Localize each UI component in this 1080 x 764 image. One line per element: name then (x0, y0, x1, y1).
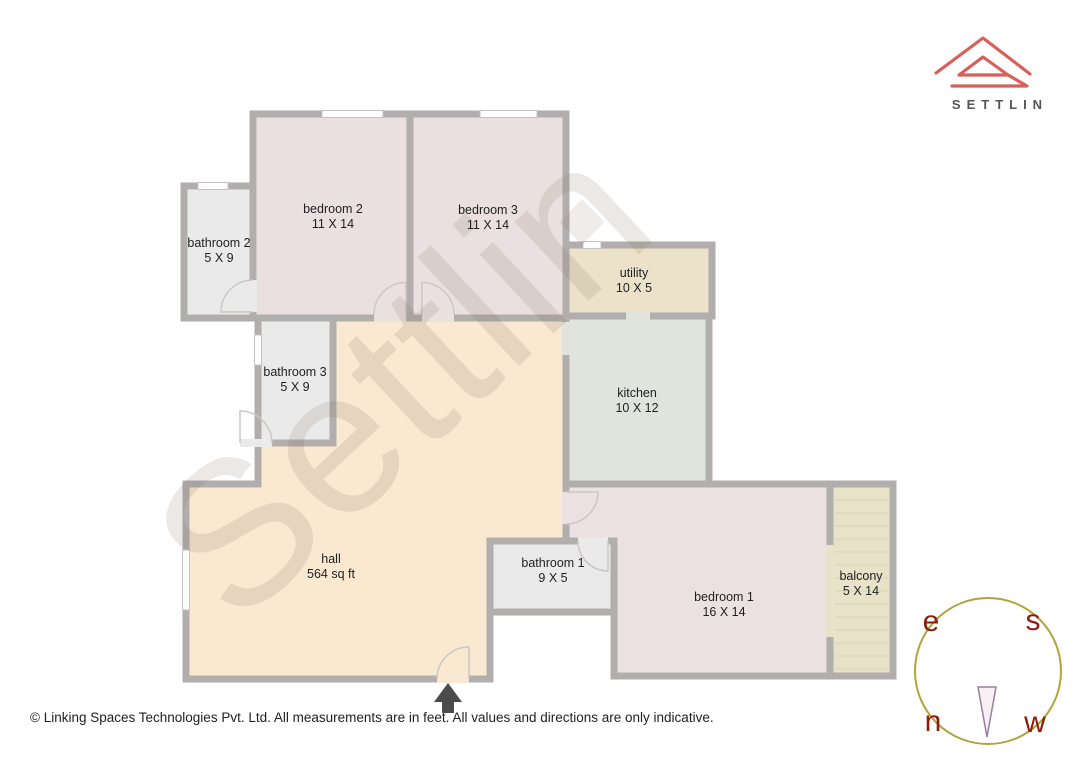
compass-south-label: s (1018, 606, 1048, 636)
window-bedroom-2 (322, 111, 383, 118)
room-shape-kitchen (566, 316, 709, 484)
window-utility (583, 242, 601, 249)
room-shape-bathroom-1 (490, 541, 614, 612)
footer-disclaimer: © Linking Spaces Technologies Pvt. Ltd. … (30, 710, 714, 725)
window-bedroom-3 (480, 111, 537, 118)
floor-plan-canvas (0, 0, 1080, 764)
room-shape-utility (566, 245, 712, 316)
room-shape-bathroom-3 (258, 318, 333, 443)
window-bathroom-3 (255, 335, 262, 365)
compass-east-label: e (916, 607, 946, 637)
compass-west-label: w (1020, 708, 1050, 738)
window-bathroom-2 (198, 183, 228, 190)
room-shape-hall (186, 318, 566, 679)
floor-plan-page: Settlin bedroom 2 11 X 14 bedroom 3 11 X… (0, 0, 1080, 764)
room-shape-bedroom-2 (253, 114, 410, 318)
rooms-group (184, 114, 893, 679)
entrance-arrow-icon (434, 683, 462, 713)
logo-text: SETTLIN (920, 97, 1080, 112)
settlin-logo: SETTLIN (920, 25, 1080, 120)
room-shape-bedroom-3 (410, 114, 566, 318)
room-shape-bathroom-2 (184, 186, 253, 318)
compass-north-label: n (918, 707, 948, 737)
window-hall (183, 550, 190, 610)
